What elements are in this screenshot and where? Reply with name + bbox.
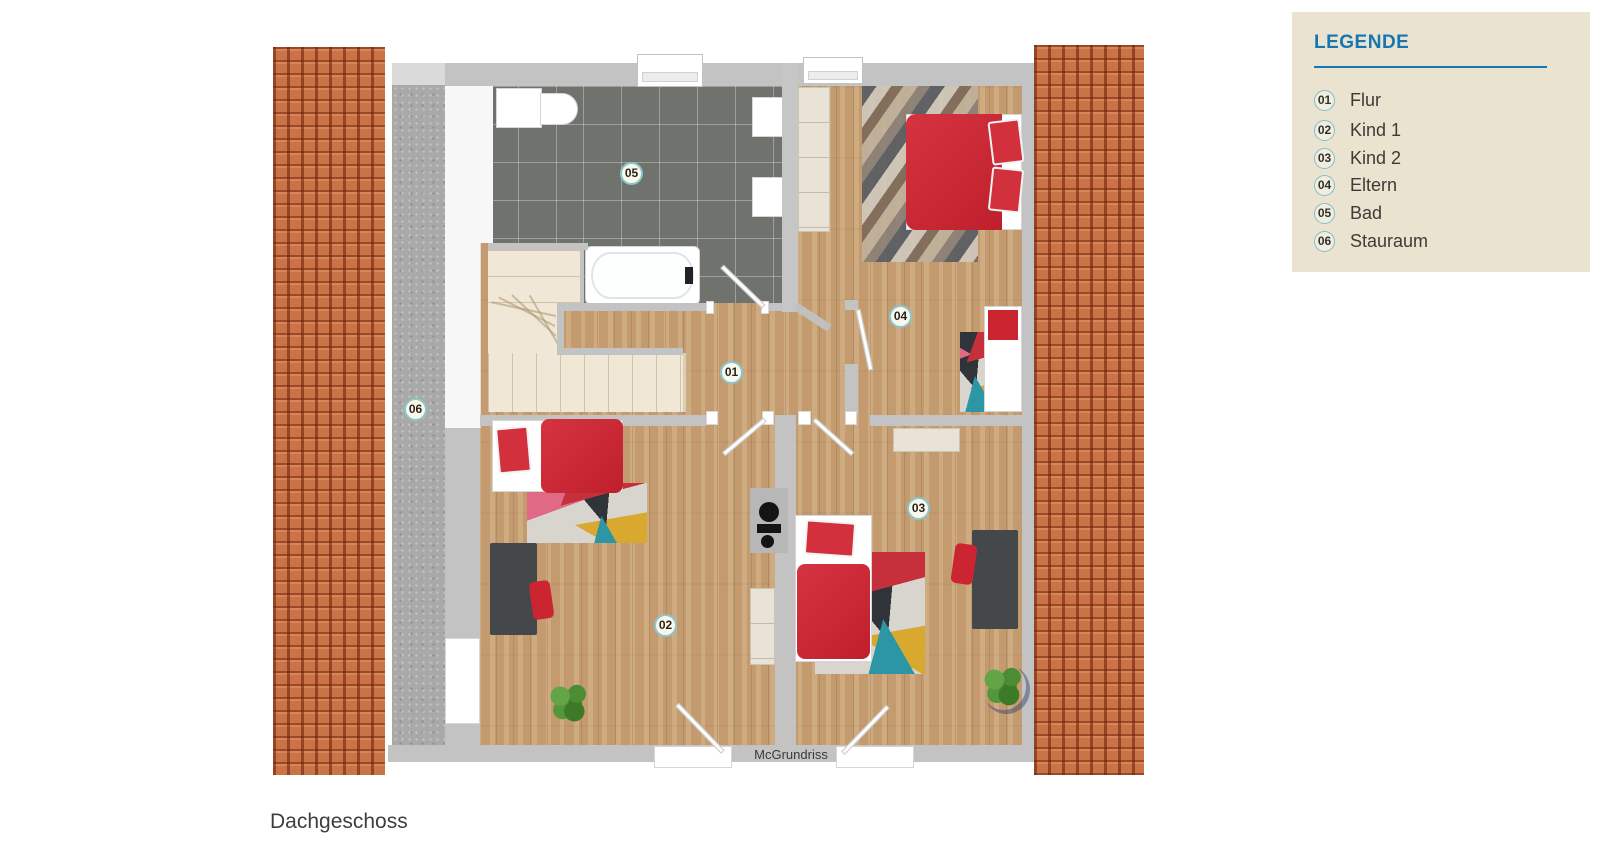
roof-window-top-1 — [637, 54, 703, 87]
door-jamb — [706, 411, 718, 425]
wall-bath-eltern — [782, 63, 798, 312]
toilet-bowl — [540, 93, 578, 125]
legend-item-flur: 01 Flur — [1314, 88, 1381, 112]
washbasin-2 — [752, 177, 785, 217]
wall-stairs-top — [488, 243, 588, 250]
bed-kind2-pillow — [804, 519, 856, 557]
marker-bad: 05 — [620, 162, 643, 185]
rug-crib — [960, 332, 984, 412]
legend-title: LEGENDE — [1314, 32, 1409, 54]
wall-hall-eltern — [845, 364, 858, 415]
plant-kind2 — [981, 663, 1026, 710]
marker-flur: 01 — [720, 361, 743, 384]
washbasin-1 — [752, 97, 785, 137]
crib-blanket — [988, 310, 1018, 340]
wall-top-light — [392, 63, 445, 85]
bed-double-pillow — [988, 166, 1024, 213]
legend-item-label: Eltern — [1350, 175, 1397, 196]
legend-item-label: Stauraum — [1350, 231, 1428, 252]
legend-item-stauraum: 06 Stauraum — [1314, 229, 1428, 253]
legend-num-badge: 02 — [1314, 120, 1335, 141]
stairs-lower — [488, 353, 683, 412]
wall-eltern-bottom — [870, 415, 1022, 426]
stairwell-notch — [563, 309, 683, 351]
marker-kind2: 03 — [907, 497, 930, 520]
desk-kind2 — [972, 530, 1018, 629]
wall-hall-eltern-stub — [845, 300, 858, 310]
door-jamb — [706, 301, 714, 314]
wall-notch-bottom — [557, 348, 683, 355]
chimney-flue-small — [761, 535, 774, 548]
legend-num-badge: 03 — [1314, 148, 1335, 169]
legend-num-badge: 01 — [1314, 90, 1335, 111]
marker-eltern: 04 — [889, 305, 912, 328]
plant-kind1 — [547, 680, 591, 726]
bed-kind2-duvet — [797, 564, 870, 659]
dresser-kind2 — [893, 428, 960, 452]
legend-item-kind2: 03 Kind 2 — [1314, 146, 1401, 170]
door-jamb — [845, 411, 857, 425]
bathtub — [585, 246, 700, 305]
bath-cabinet-column — [480, 86, 493, 243]
floor-plan: 01 02 03 04 05 06 McGrundriss — [388, 63, 1034, 762]
roof-window-frame — [808, 71, 858, 80]
wall-bath-bottom — [557, 303, 712, 311]
legend-item-bad: 05 Bad — [1314, 201, 1382, 225]
legend-item-label: Kind 2 — [1350, 148, 1401, 169]
watermark-text: McGrundriss — [728, 747, 854, 762]
legend-item-label: Flur — [1350, 90, 1381, 111]
chimney — [750, 488, 788, 553]
roof-window-top-2 — [803, 57, 863, 84]
window-left — [445, 638, 480, 724]
legend-item-eltern: 04 Eltern — [1314, 173, 1397, 197]
toilet-tank — [496, 88, 542, 128]
door-jamb — [798, 411, 811, 425]
legend-num-badge: 06 — [1314, 231, 1335, 252]
legend-item-kind1: 02 Kind 1 — [1314, 118, 1401, 142]
roof-tiles-right — [1034, 45, 1144, 775]
bed-kind1-pillow — [495, 426, 532, 475]
chimney-vent-bar — [757, 524, 781, 533]
dresser-kind1 — [750, 588, 775, 665]
chimney-flue-large — [759, 502, 779, 522]
legend-item-label: Bad — [1350, 203, 1382, 224]
legend-num-badge: 04 — [1314, 175, 1335, 196]
knee-wall — [445, 86, 481, 428]
bathtub-faucet — [685, 267, 693, 284]
crib — [984, 306, 1022, 412]
wall-right — [1022, 63, 1034, 762]
legend-item-label: Kind 1 — [1350, 120, 1401, 141]
bed-double-pillow — [987, 118, 1024, 166]
roof-tiles-left — [273, 47, 385, 775]
closet-eltern — [798, 87, 830, 232]
legend-divider — [1314, 66, 1547, 68]
bed-kind1-duvet — [541, 419, 623, 493]
roof-window-frame — [642, 72, 698, 82]
bathtub-basin — [591, 252, 694, 299]
legend-panel: LEGENDE 01 Flur 02 Kind 1 03 Kind 2 04 E… — [1292, 12, 1590, 272]
wall-center — [775, 415, 796, 745]
floor-caption: Dachgeschoss — [270, 810, 408, 834]
marker-kind1: 02 — [654, 614, 677, 637]
wall-top — [445, 63, 1022, 86]
marker-stauraum: 06 — [404, 398, 427, 421]
stair-edge — [683, 353, 686, 412]
legend-num-badge: 05 — [1314, 203, 1335, 224]
